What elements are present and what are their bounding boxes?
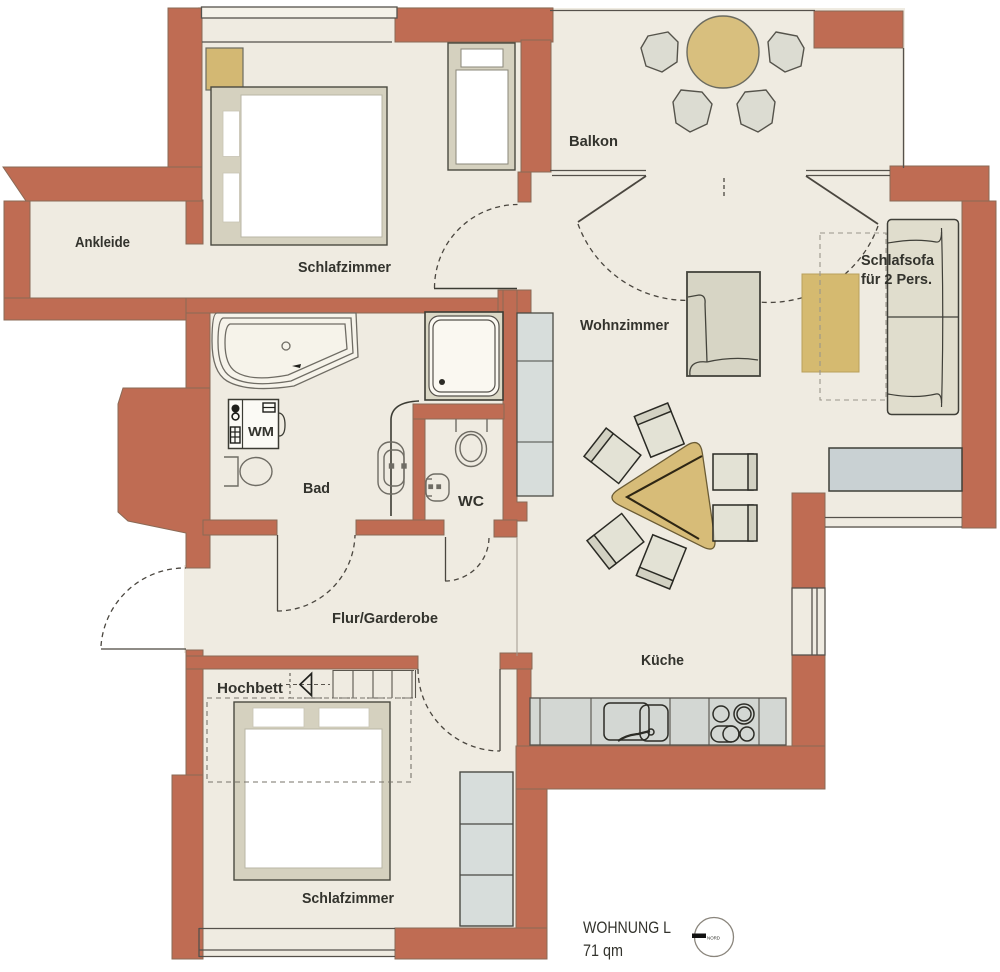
svg-text:WM: WM: [248, 424, 274, 439]
svg-text:WC: WC: [458, 493, 484, 510]
svg-text:Schlafzimmer: Schlafzimmer: [298, 259, 391, 276]
svg-text:Balkon: Balkon: [569, 133, 618, 150]
svg-text:Hochbett: Hochbett: [217, 680, 283, 697]
svg-text:WOHNUNG L: WOHNUNG L: [583, 919, 671, 937]
svg-text:Flur/Garderobe: Flur/Garderobe: [332, 610, 438, 627]
svg-text:Ankleide: Ankleide: [75, 234, 130, 251]
svg-text:für 2 Pers.: für 2 Pers.: [861, 271, 932, 288]
svg-text:Schlafsofa: Schlafsofa: [861, 252, 935, 269]
svg-text:71 qm: 71 qm: [583, 942, 623, 960]
svg-text:Wohnzimmer: Wohnzimmer: [580, 317, 669, 334]
svg-text:NORD: NORD: [707, 936, 721, 941]
svg-text:Schlafzimmer: Schlafzimmer: [302, 890, 394, 907]
svg-text:Bad: Bad: [303, 480, 330, 497]
svg-text:Küche: Küche: [641, 652, 684, 669]
